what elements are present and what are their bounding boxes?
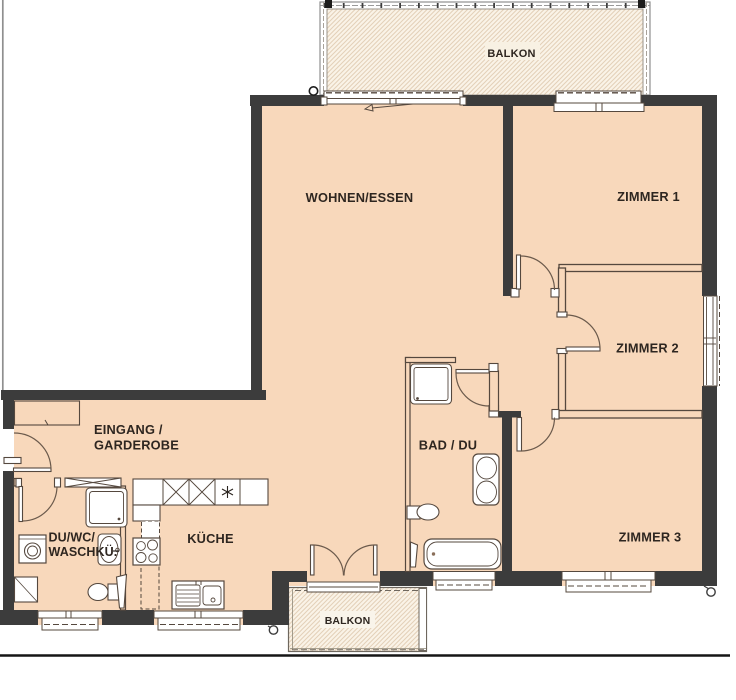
svg-text:WOHNEN/ESSEN: WOHNEN/ESSEN bbox=[306, 190, 414, 205]
svg-text:EINGANG /: EINGANG / bbox=[94, 422, 163, 437]
svg-text:BAD / DU: BAD / DU bbox=[419, 438, 477, 453]
svg-text:BALKON: BALKON bbox=[325, 615, 371, 627]
svg-text:WASCHKÜ.: WASCHKÜ. bbox=[49, 544, 118, 559]
svg-text:ZIMMER 2: ZIMMER 2 bbox=[616, 341, 679, 356]
svg-text:ZIMMER 1: ZIMMER 1 bbox=[617, 189, 680, 204]
svg-text:KÜCHE: KÜCHE bbox=[187, 531, 234, 546]
svg-text:DU/WC/: DU/WC/ bbox=[49, 531, 96, 545]
svg-text:BALKON: BALKON bbox=[487, 48, 535, 60]
svg-text:ZIMMER 3: ZIMMER 3 bbox=[619, 530, 682, 545]
svg-text:GARDEROBE: GARDEROBE bbox=[94, 438, 179, 453]
